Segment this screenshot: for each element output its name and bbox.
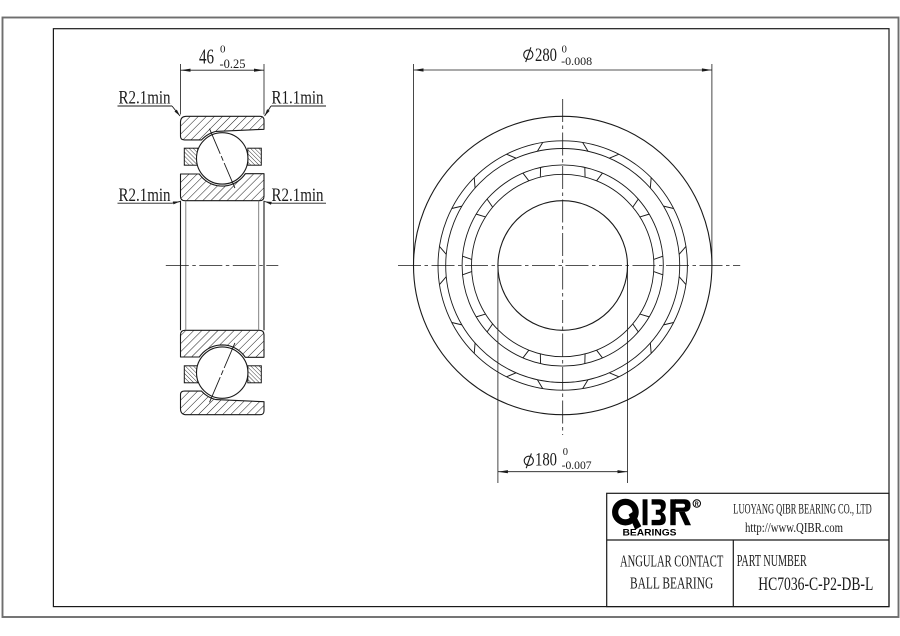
svg-text:R: R <box>695 501 699 508</box>
svg-text:180: 180 <box>535 449 557 470</box>
svg-text:-0.25: -0.25 <box>220 57 246 71</box>
svg-text:ANGULAR CONTACT: ANGULAR CONTACT <box>620 552 723 571</box>
svg-text:HC7036-C-P2-DB-L: HC7036-C-P2-DB-L <box>758 574 873 595</box>
svg-text:280: 280 <box>535 45 557 66</box>
svg-text:R2.1min: R2.1min <box>272 185 324 206</box>
svg-text:-0.008: -0.008 <box>561 54 592 68</box>
svg-text:R2.1min: R2.1min <box>119 185 171 206</box>
svg-text:46: 46 <box>199 45 214 69</box>
svg-text:-0.007: -0.007 <box>562 458 592 472</box>
svg-text:http://www.QIBR.com: http://www.QIBR.com <box>745 521 843 536</box>
svg-text:0: 0 <box>563 447 568 458</box>
svg-text:R1.1min: R1.1min <box>272 88 324 109</box>
svg-text:R2.1min: R2.1min <box>119 88 171 109</box>
svg-text:LUOYANG QIBR BEARING CO., LTD: LUOYANG QIBR BEARING CO., LTD <box>733 501 871 517</box>
svg-text:BEARINGS: BEARINGS <box>623 528 677 538</box>
svg-text:0: 0 <box>220 44 226 56</box>
svg-text:PART NUMBER: PART NUMBER <box>737 551 807 570</box>
svg-text:BALL BEARING: BALL BEARING <box>630 573 713 592</box>
